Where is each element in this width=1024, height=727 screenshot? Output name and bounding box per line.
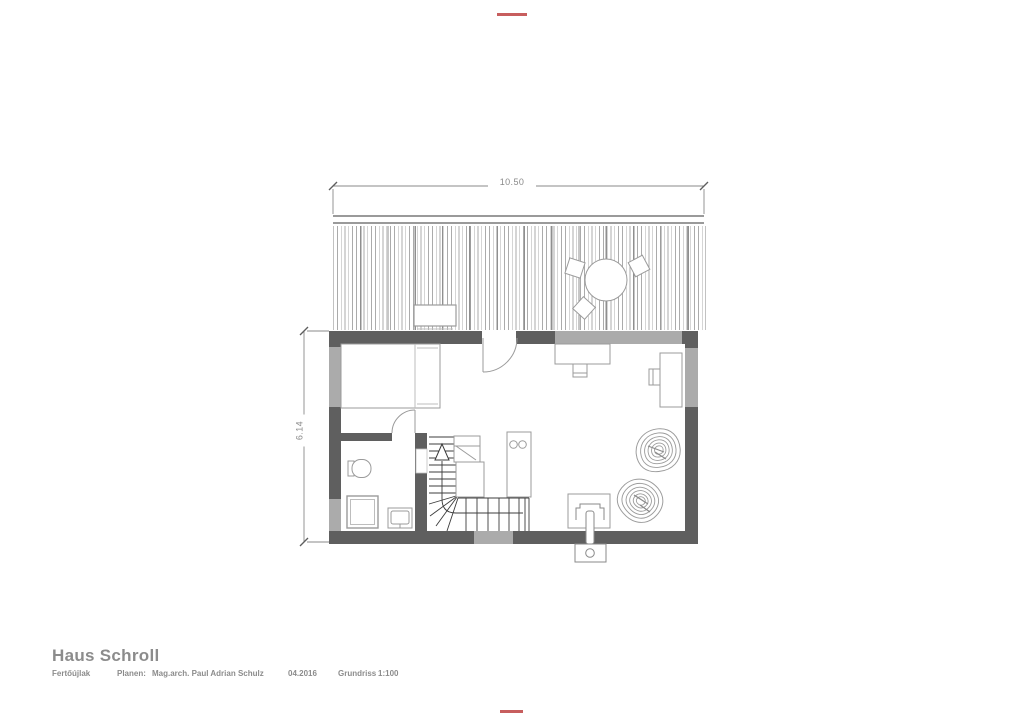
stove-flue <box>586 511 594 544</box>
kitchen <box>454 432 531 497</box>
table <box>555 344 610 364</box>
location-label: Fertőújlak <box>52 669 90 678</box>
outdoor-chair <box>573 297 596 320</box>
dimension-label-width: 10.50 <box>488 177 536 188</box>
kitchen-counter <box>456 462 484 497</box>
deck-bench <box>414 305 456 326</box>
stair-direction-arrow-icon <box>435 444 449 460</box>
outdoor-chair <box>565 258 585 278</box>
project-title: Haus Schroll <box>52 646 160 666</box>
planner-name: Mag.arch. Paul Adrian Schulz <box>152 669 264 678</box>
bathroom-fixtures <box>347 460 412 529</box>
window-west-bath <box>329 499 341 531</box>
window-west-bedroom <box>329 347 341 407</box>
date-label: 04.2016 <box>288 669 317 678</box>
deck-furniture <box>414 255 650 329</box>
bedroom-furniture <box>341 344 440 408</box>
planner-label: Planen: <box>117 669 146 678</box>
chimney-pipe <box>586 549 595 558</box>
window-band-north <box>555 331 682 344</box>
floor-plan-drawing <box>0 0 1024 727</box>
shower-tray <box>347 496 378 528</box>
work-area <box>555 344 682 407</box>
wall-niche <box>416 449 427 473</box>
chair <box>573 364 587 377</box>
window-east <box>685 348 698 407</box>
wood-stove <box>568 494 610 562</box>
bathroom-door <box>392 410 415 433</box>
stone-seat <box>610 470 671 531</box>
entry-door <box>483 338 517 372</box>
title-block: Haus Schroll <box>52 646 160 666</box>
dimension-label-height: 6.14 <box>295 415 306 447</box>
floor-plan-sheet: 10.50 6.14 Haus Schroll Fertőújlak Plane… <box>0 0 1024 727</box>
drawing-type-label: Grundriss <box>338 669 376 678</box>
entrance-south <box>474 531 513 544</box>
desk-chair <box>649 369 660 385</box>
toilet <box>352 460 371 478</box>
scale-label: 1:100 <box>378 669 398 678</box>
outdoor-table <box>585 259 627 301</box>
bed <box>341 344 440 408</box>
kitchen-appliance <box>454 436 480 462</box>
outdoor-chair <box>628 255 650 277</box>
desk <box>660 353 682 407</box>
